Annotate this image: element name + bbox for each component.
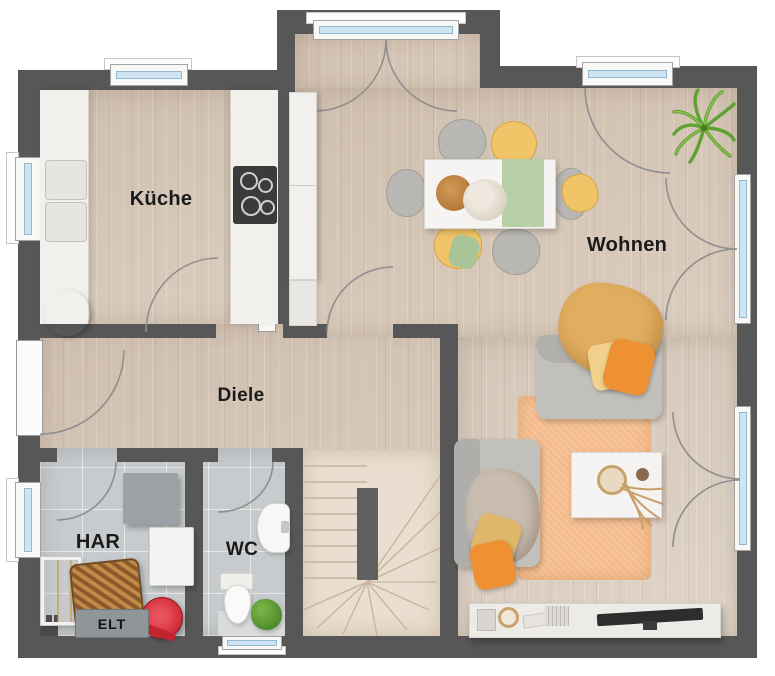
room-label-hallway: Diele [201,385,281,407]
room-label-living: Wohnen [582,234,672,257]
cooktop-burner [258,178,273,193]
washing-machine [149,527,194,586]
cooktop-burner [241,196,261,216]
tv-stand [643,621,657,630]
room-label-wc: WC [212,539,272,561]
door-swing-arc [40,350,124,434]
kitchen-top-window-glass [116,71,182,79]
floor-plan: ELT Küche Wohnen Diele HAR WC [0,0,775,676]
decor-books [545,606,569,626]
dining-chair-gray [386,169,426,217]
door-swing-arc [666,249,737,320]
door-swing-arc [218,462,273,512]
wc-window-glass [227,640,277,646]
kitchen-sink [45,160,87,200]
room-label-kitchen: Küche [121,188,201,211]
terrace-french-door-glass [319,26,453,34]
door-swing-arc [146,258,218,332]
tall-cabinet-seam [289,185,315,186]
garden-door-glass [588,70,667,78]
palm-plant [672,86,736,164]
base-cabinet [289,280,317,326]
table-runner [502,159,544,227]
wall-segment [117,448,218,462]
door-swing-arc [673,412,740,479]
door-swing-arc [57,462,116,520]
kitchen-side-window-glass [24,163,32,235]
living-french-door-upper-glass [739,180,747,318]
staircase-treads [303,450,440,636]
fruit-basket [44,290,90,336]
kitchen-sink [45,202,87,242]
door-swing-arc [585,88,670,173]
table-flowers [463,179,507,221]
electrical-panel-label: ELT [98,616,126,632]
entry-door [16,340,43,436]
room-label-utility: HAR [58,531,138,554]
door-swing-arc [327,267,393,333]
tall-cabinet [289,92,317,280]
electrical-panel: ELT [75,609,149,638]
dried-grass [613,474,665,529]
wall-segment [40,448,57,462]
door-swing-arc [386,40,457,111]
cooktop-burner [240,172,258,190]
door-swing-arc [315,40,386,111]
utility-window-glass [24,488,32,552]
decor-figure [477,609,496,631]
living-french-door-lower-glass [739,412,747,545]
cooktop-burner [260,200,275,215]
staircase [303,450,440,636]
water-heater [123,473,178,524]
wc-plant [251,599,282,630]
wall-segment [272,448,303,462]
wall-segment [283,324,327,338]
door-swing-arc [666,178,737,249]
door-swing-arc [673,480,740,547]
washbasin-faucet [281,521,289,533]
decor-tray [498,607,519,628]
